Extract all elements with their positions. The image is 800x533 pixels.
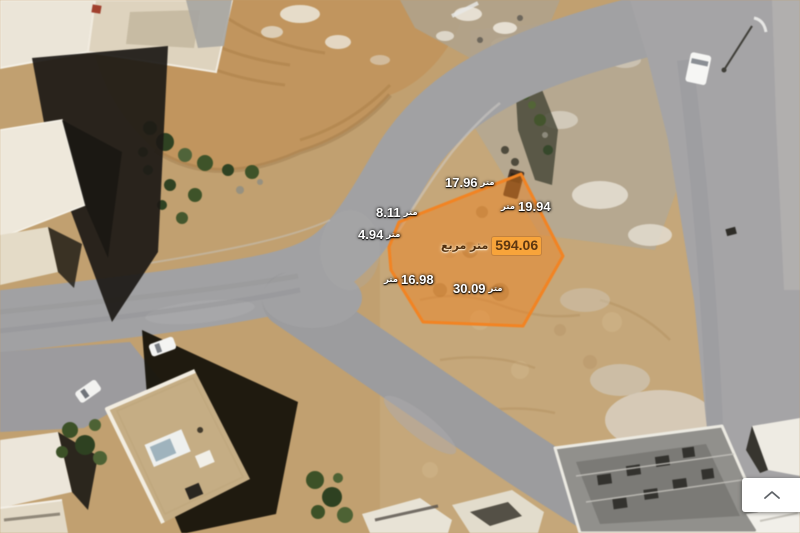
collapse-panel-button[interactable] bbox=[742, 478, 800, 512]
chevron-up-icon bbox=[763, 490, 781, 500]
rooftop-tank bbox=[91, 4, 101, 13]
satellite-imagery[interactable] bbox=[0, 0, 800, 533]
map-viewport[interactable]: 17.96 متر 8.11 متر 4.94 متر متر 19.94 مت… bbox=[0, 0, 800, 533]
